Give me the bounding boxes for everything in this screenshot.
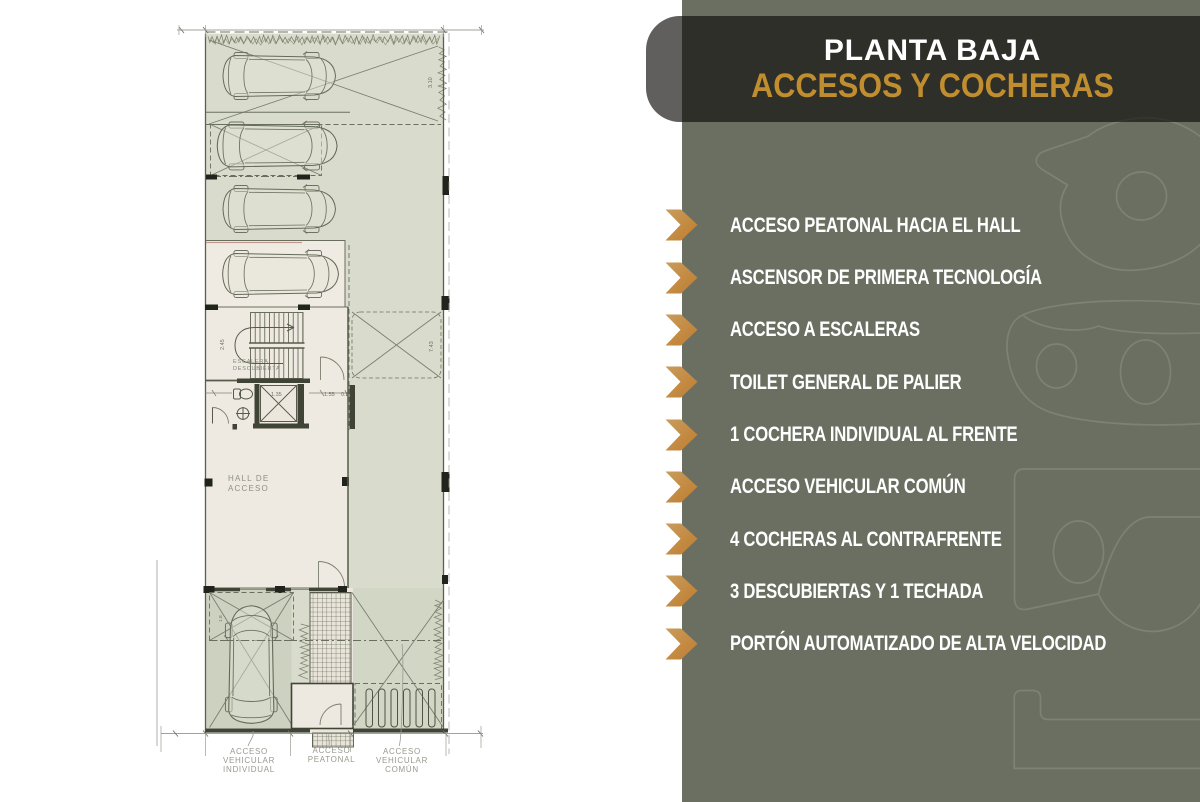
- svg-text:DESCUBIERTA: DESCUBIERTA: [233, 366, 280, 372]
- svg-text:ACCESO: ACCESO: [313, 746, 351, 755]
- svg-text:1.55: 1.55: [324, 392, 335, 398]
- svg-text:ACCESO: ACCESO: [228, 484, 269, 493]
- svg-text:2.45: 2.45: [220, 339, 226, 350]
- svg-text:1.8: 1.8: [218, 615, 224, 622]
- svg-text:INDIVIDUAL: INDIVIDUAL: [223, 765, 275, 774]
- svg-text:COMÚN: COMÚN: [385, 765, 419, 774]
- svg-text:ESCALERA: ESCALERA: [233, 359, 269, 365]
- svg-text:HALL DE: HALL DE: [228, 474, 269, 483]
- svg-text:ACCESO: ACCESO: [230, 747, 268, 756]
- svg-text:1.35: 1.35: [271, 392, 282, 398]
- svg-text:ACCESO: ACCESO: [383, 747, 421, 756]
- svg-text:VEHICULAR: VEHICULAR: [223, 756, 275, 765]
- svg-text:3.10: 3.10: [428, 77, 434, 88]
- svg-text:7.43: 7.43: [429, 341, 435, 352]
- svg-text:VEHICULAR: VEHICULAR: [376, 756, 428, 765]
- svg-text:PEATONAL: PEATONAL: [308, 755, 356, 764]
